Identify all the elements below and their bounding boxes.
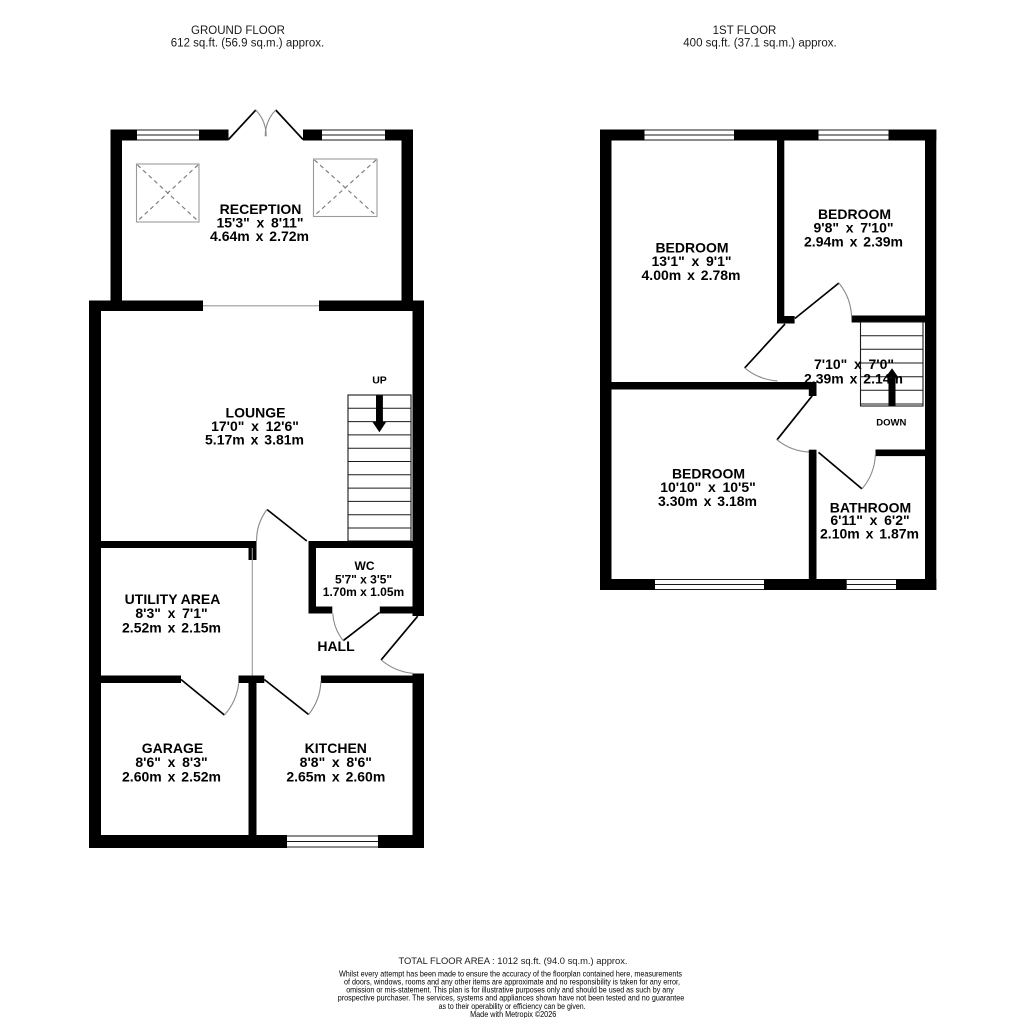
svg-text:2.10m x 1.87m: 2.10m x 1.87m — [820, 525, 919, 541]
svg-text:4.64m x 2.72m: 4.64m x 2.72m — [210, 228, 309, 244]
svg-text:4.00m x 2.78m: 4.00m x 2.78m — [642, 267, 741, 283]
svg-text:2.94m x 2.39m: 2.94m x 2.39m — [804, 234, 903, 250]
svg-text:1ST FLOOR: 1ST FLOOR — [713, 25, 777, 37]
svg-text:HALL: HALL — [317, 638, 355, 654]
svg-text:1.70m x 1.05m: 1.70m x 1.05m — [323, 585, 404, 599]
svg-text:400 sq.ft. (37.1 sq.m.) approx: 400 sq.ft. (37.1 sq.m.) approx. — [683, 38, 836, 50]
svg-text:Made with Metropix ©2026: Made with Metropix ©2026 — [470, 1009, 556, 1018]
svg-text:WC: WC — [355, 559, 375, 573]
svg-text:2.39m x 2.14m: 2.39m x 2.14m — [804, 371, 903, 387]
svg-text:DOWN: DOWN — [876, 417, 906, 428]
svg-text:GROUND FLOOR: GROUND FLOOR — [191, 25, 285, 37]
svg-text:2.65m x 2.60m: 2.65m x 2.60m — [286, 768, 385, 784]
svg-text:TOTAL FLOOR AREA : 1012 sq.ft.: TOTAL FLOOR AREA : 1012 sq.ft. (94.0 sq.… — [398, 955, 627, 966]
svg-text:2.60m x 2.52m: 2.60m x 2.52m — [122, 768, 221, 784]
svg-text:612 sq.ft. (56.9 sq.m.) approx: 612 sq.ft. (56.9 sq.m.) approx. — [171, 38, 324, 50]
svg-text:UP: UP — [372, 375, 387, 387]
svg-text:3.30m x 3.18m: 3.30m x 3.18m — [658, 493, 757, 509]
svg-text:2.52m x 2.15m: 2.52m x 2.15m — [122, 619, 221, 635]
svg-text:7'10" x 7'0": 7'10" x 7'0" — [814, 356, 894, 372]
svg-text:5.17m x 3.81m: 5.17m x 3.81m — [205, 432, 304, 448]
